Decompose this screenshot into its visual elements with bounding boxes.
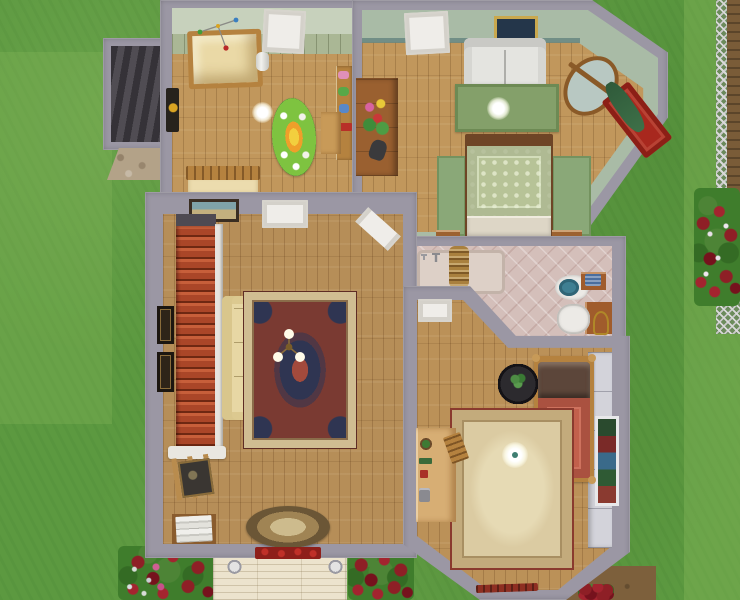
desk-cactus[interactable]: [420, 438, 432, 450]
porch-lamp-left[interactable]: [227, 556, 242, 574]
wall-frame-lower[interactable]: [157, 352, 174, 392]
toy-pink[interactable]: [338, 71, 349, 79]
baby-mobile[interactable]: [196, 14, 252, 58]
dresser-flower-vase[interactable]: [360, 94, 392, 138]
table-plant[interactable]: [508, 372, 528, 390]
master-door[interactable]: [404, 11, 450, 55]
easel-canvas: [178, 458, 215, 498]
blue-towels: [585, 274, 601, 286]
desk-red-item[interactable]: [420, 470, 428, 478]
nursery-wall-hanging[interactable]: [166, 88, 179, 132]
diaper-pail[interactable]: [256, 52, 269, 71]
staircase[interactable]: [176, 226, 215, 448]
double-bed-blanket: [467, 146, 551, 218]
desk-green-book[interactable]: [419, 458, 432, 464]
bedside-rug-right[interactable]: [552, 156, 591, 236]
bed-post-tl: [532, 354, 540, 362]
bed-post-br: [588, 476, 596, 484]
bedroom-lamp-finial: [512, 452, 518, 458]
stone-chimney: [107, 148, 161, 180]
flower-window-box: [255, 547, 321, 559]
nursery-bench[interactable]: [186, 166, 260, 180]
nursery-ceiling-lamp[interactable]: [252, 102, 273, 123]
single-bed-blanket-brown: [538, 362, 590, 398]
flower-bed-pink-white: [120, 556, 168, 600]
master-ceiling-lamp[interactable]: [487, 97, 510, 120]
bed-post-tr: [588, 354, 596, 362]
toy-red-blocks[interactable]: [340, 123, 352, 131]
bedside-rug-left[interactable]: [437, 156, 466, 236]
living-room-door[interactable]: [262, 200, 308, 228]
bedroom-rug[interactable]: [452, 410, 572, 568]
bedroom-window-art[interactable]: [595, 416, 619, 506]
chandelier[interactable]: [270, 328, 308, 366]
persian-rug[interactable]: [244, 292, 356, 448]
dirt-border: [727, 0, 740, 195]
nursery-desk[interactable]: [321, 112, 341, 154]
braided-oval-rug[interactable]: [246, 506, 330, 548]
desk-phone[interactable]: [419, 488, 430, 502]
flower-bed-right-white-accents: [698, 210, 738, 290]
book-stack-books: [175, 515, 212, 543]
toilet-seat: [559, 279, 579, 296]
porch-lamp-right[interactable]: [328, 556, 343, 574]
loveseat-cushion-split: [504, 50, 506, 88]
decor-column[interactable]: [449, 246, 469, 288]
toy-frog[interactable]: [338, 87, 349, 96]
double-bed-sheet: [467, 216, 551, 238]
wall-frame-upper[interactable]: [157, 306, 174, 344]
sink[interactable]: [557, 304, 590, 334]
brass-towel-stand[interactable]: [593, 311, 609, 335]
nursery-door[interactable]: [262, 9, 306, 54]
bedroom-door-from-living[interactable]: [418, 299, 452, 322]
lawn-light-patch: [0, 52, 112, 424]
game-viewport: [0, 0, 740, 600]
tub-faucet[interactable]: [420, 250, 448, 268]
